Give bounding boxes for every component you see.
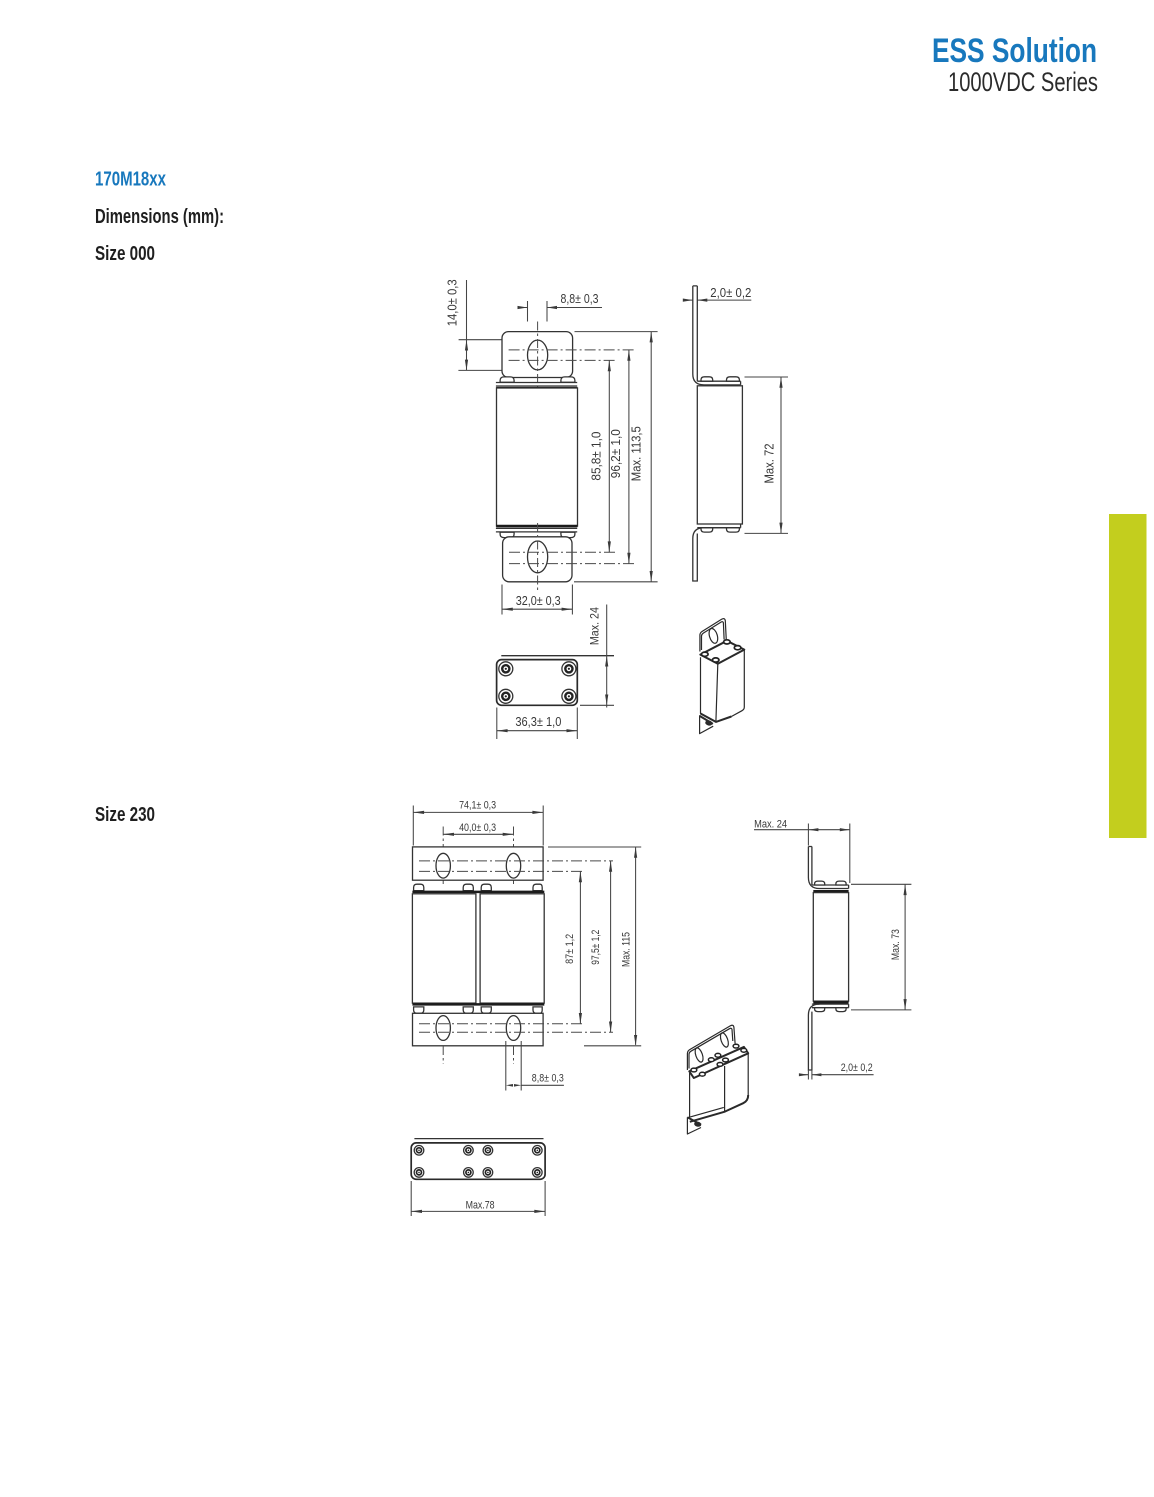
svg-text:87± 1,2: 87± 1,2 xyxy=(564,934,576,964)
svg-text:Size 230: Size 230 xyxy=(95,804,155,826)
svg-text:Max. 24: Max. 24 xyxy=(754,818,787,830)
svg-text:8,8± 0,3: 8,8± 0,3 xyxy=(561,291,599,306)
svg-text:14,0± 0,3: 14,0± 0,3 xyxy=(445,279,460,326)
svg-text:74,1± 0,3: 74,1± 0,3 xyxy=(459,800,496,812)
svg-text:40,0± 0,3: 40,0± 0,3 xyxy=(459,822,496,834)
svg-text:Dimensions (mm):: Dimensions (mm): xyxy=(95,206,224,228)
svg-text:Max. 72: Max. 72 xyxy=(761,444,776,484)
svg-text:8,8± 0,3: 8,8± 0,3 xyxy=(532,1073,564,1085)
svg-text:Max. 73: Max. 73 xyxy=(890,929,902,960)
svg-text:Max.78: Max.78 xyxy=(466,1200,495,1212)
svg-text:Max. 113,5: Max. 113,5 xyxy=(629,426,644,481)
svg-text:32,0± 0,3: 32,0± 0,3 xyxy=(516,593,561,608)
svg-text:Max. 24: Max. 24 xyxy=(587,607,601,645)
svg-text:Size 000: Size 000 xyxy=(95,243,155,265)
svg-text:1000VDC Series: 1000VDC Series xyxy=(948,67,1098,97)
svg-text:170M18xx: 170M18xx xyxy=(95,169,166,191)
svg-text:Max. 115: Max. 115 xyxy=(620,932,632,967)
svg-text:ESS Solution: ESS Solution xyxy=(932,32,1097,70)
svg-text:2,0± 0,2: 2,0± 0,2 xyxy=(841,1062,873,1074)
svg-text:96,2± 1,0: 96,2± 1,0 xyxy=(608,429,623,478)
svg-text:85,8± 1,0: 85,8± 1,0 xyxy=(588,432,603,481)
svg-text:2,0± 0,2: 2,0± 0,2 xyxy=(710,285,751,300)
svg-text:97,5± 1,2: 97,5± 1,2 xyxy=(590,930,602,965)
svg-text:36,3± 1,0: 36,3± 1,0 xyxy=(515,714,561,729)
